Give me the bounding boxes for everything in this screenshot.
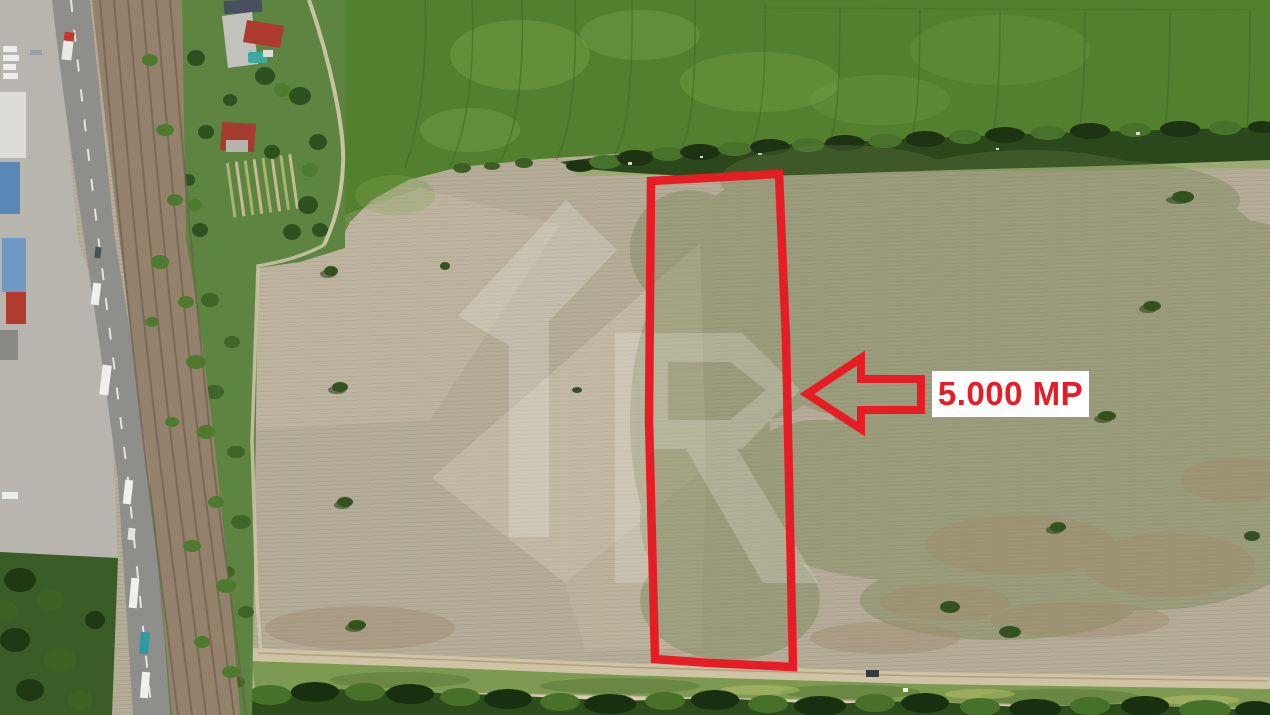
aerial-photo-land-listing: 5.000 MP [0, 0, 1270, 715]
left-arrow-icon [807, 358, 921, 429]
plot-outline [649, 174, 793, 667]
area-label-text: 5.000 MP [938, 375, 1083, 413]
annotation-layer [0, 0, 1270, 715]
area-label: 5.000 MP [932, 371, 1089, 417]
